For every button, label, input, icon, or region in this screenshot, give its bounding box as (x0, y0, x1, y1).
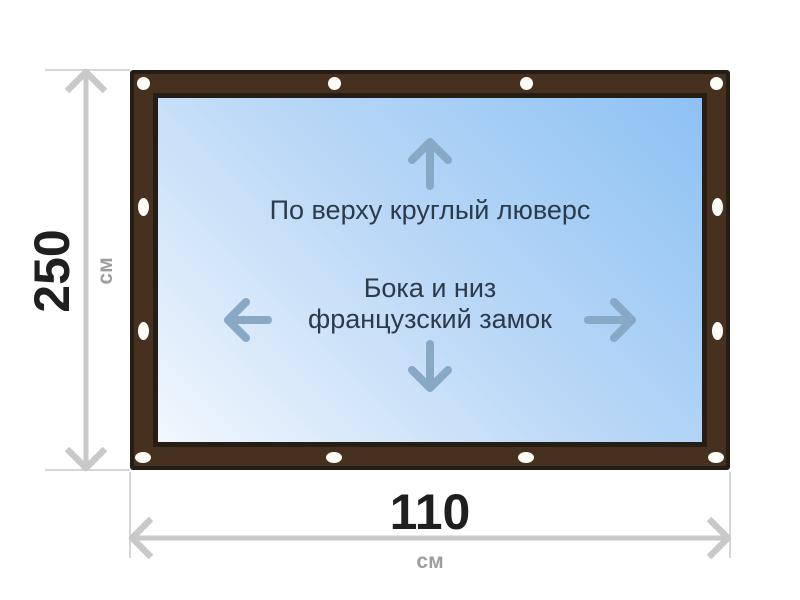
annotation-sides-bottom-line2: французский замок (158, 304, 702, 335)
grommet (137, 77, 150, 90)
width-dimension-value: 110 (330, 489, 530, 535)
grommet (712, 322, 723, 340)
grommet (708, 452, 724, 463)
grommet (710, 77, 723, 90)
height-dimension-unit: см (94, 241, 118, 301)
annotation-top-edge: По верху круглый люверс (158, 196, 702, 224)
grommet (135, 452, 151, 463)
annotation-sides-bottom-line1: Бока и низ (158, 273, 702, 304)
grommet (326, 452, 342, 463)
annotation-top-edge-text: По верху круглый люверс (270, 195, 591, 225)
grommet (712, 198, 723, 216)
height-dimension-value: 250 (27, 171, 77, 371)
grommet (138, 322, 149, 340)
width-dimension-unit: см (380, 551, 480, 573)
grommet (328, 77, 341, 90)
arrow-up-icon (408, 136, 452, 190)
grommet (138, 198, 149, 216)
grommet (520, 77, 533, 90)
arrow-down-icon (408, 340, 452, 394)
grommet (518, 452, 534, 463)
product-dimension-diagram: По верху круглый люверс Бока и низ франц… (0, 0, 800, 600)
tarpaulin-curtain (130, 70, 730, 470)
annotation-sides-bottom: Бока и низ французский замок (158, 273, 702, 335)
